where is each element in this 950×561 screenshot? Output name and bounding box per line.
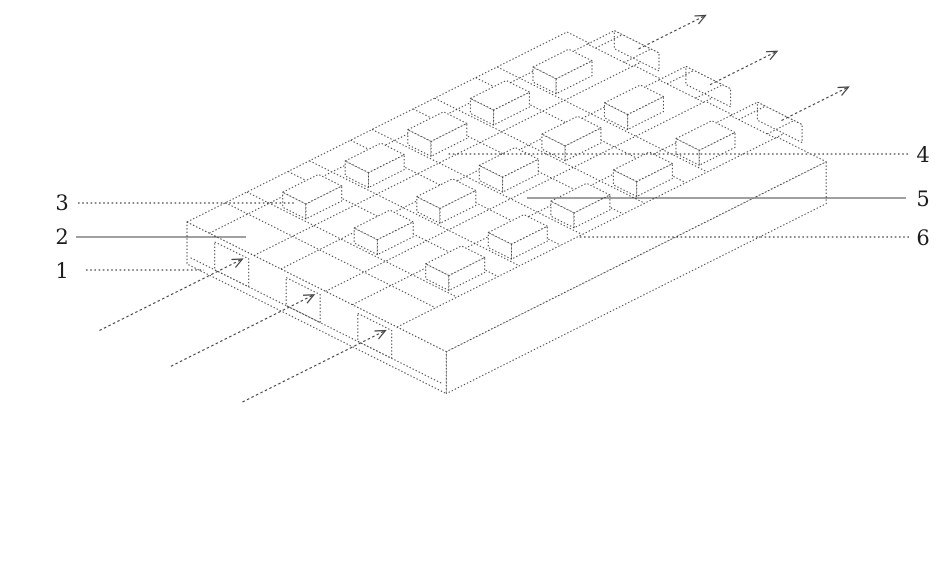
outlet-flow-arrow-3-shaft <box>782 87 849 121</box>
reference-label-6: 6 <box>916 226 929 250</box>
outlet-flow-arrow-2-shaft <box>710 51 777 85</box>
reference-label-1: 1 <box>55 259 68 283</box>
reference-label-5: 5 <box>916 187 929 211</box>
outlet-flow-arrow-1-shaft <box>638 15 705 49</box>
outlet-flow-arrow-1-head <box>694 15 705 24</box>
inlet-flow-arrow-3-shaft <box>242 331 385 403</box>
reference-label-3: 3 <box>55 191 68 215</box>
inlet-flow-arrow-2-shaft <box>171 295 314 367</box>
outlet-flow-arrow-3-head <box>838 87 849 96</box>
figure-page: 123456 <box>0 0 950 561</box>
reference-label-2: 2 <box>55 225 68 249</box>
patent-figure-canvas: 123456 <box>0 0 950 561</box>
reference-label-4: 4 <box>916 143 929 167</box>
outlet-flow-arrow-2-head <box>766 51 777 60</box>
